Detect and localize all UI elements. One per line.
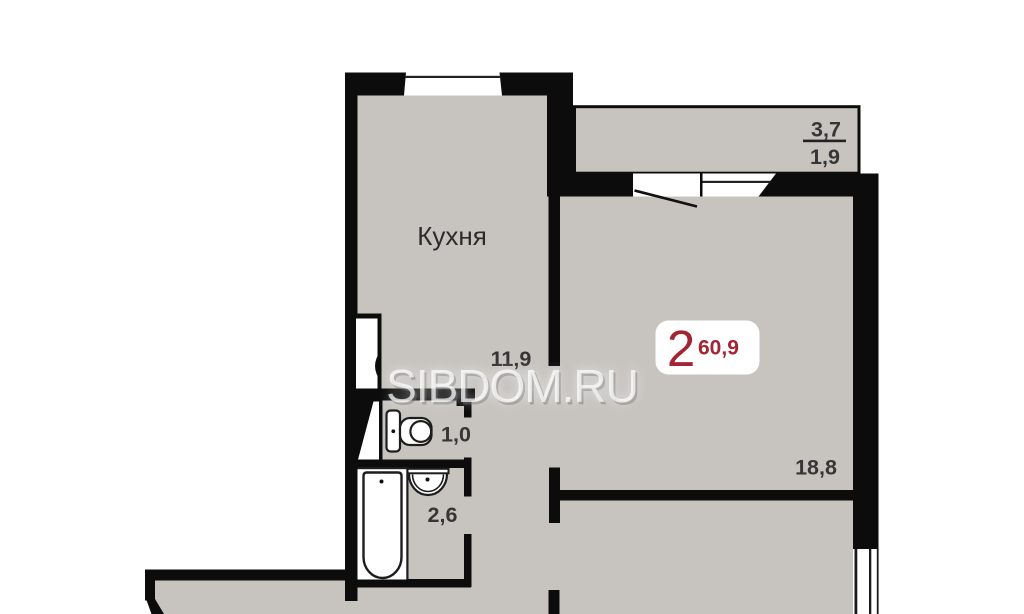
svg-text:SIBDOM.RU: SIBDOM.RU [386,360,638,412]
svg-text:18,8: 18,8 [795,456,837,480]
svg-text:1,9: 1,9 [810,145,840,169]
svg-text:3,7: 3,7 [811,118,841,142]
svg-text:60,9: 60,9 [698,337,739,360]
svg-text:1,0: 1,0 [441,423,471,447]
svg-text:2,6: 2,6 [428,503,458,527]
svg-text:2: 2 [667,320,695,377]
svg-text:Кухня: Кухня [417,221,487,251]
